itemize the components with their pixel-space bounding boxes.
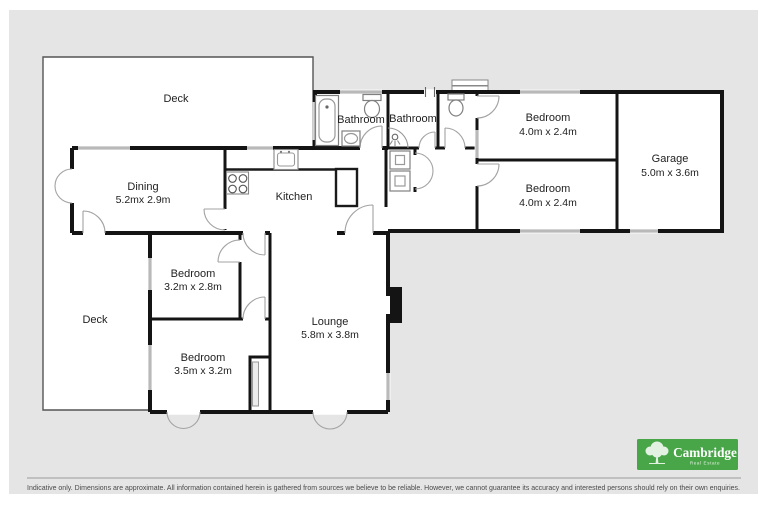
cambridge-logo: Cambridge Real Estate [637,439,738,470]
room-label-deck-top: Deck [163,93,189,105]
logo-tagline: Real Estate [690,461,720,466]
room-label-deck-left: Deck [82,314,108,326]
svg-text:4.0m x 2.4m: 4.0m x 2.4m [519,126,577,138]
svg-text:Lounge: Lounge [312,316,349,328]
room-label-kitchen: Kitchen [276,191,313,203]
disclaimer-text: Indicative only. Dimensions are approxim… [27,483,740,492]
bathtub-icon [316,96,339,146]
room-label-bathroom-2: Bathroom [389,113,437,125]
svg-text:Bedroom: Bedroom [526,112,571,124]
room-label-bedroom-small: Bedroom 3.2m x 2.8m [164,268,222,293]
wc-toilet-icon [448,94,464,116]
washer-icon [390,151,410,169]
svg-text:Bedroom: Bedroom [526,183,571,195]
svg-text:3.5m x 3.2m: 3.5m x 3.2m [174,365,232,377]
svg-text:4.0m x 2.4m: 4.0m x 2.4m [519,197,577,209]
fireplace-icon [384,287,403,323]
room-label-bathroom-1: Bathroom [337,114,385,126]
svg-text:Bedroom: Bedroom [171,268,216,280]
svg-text:Dining: Dining [127,181,158,193]
dryer-icon [390,171,410,191]
svg-text:Garage: Garage [652,153,689,165]
sink-icon [342,131,360,146]
floorplan-page: Deck Dining 5.2mx 2.9m Kitchen Bathroom … [0,0,768,512]
stove-icon [227,172,249,194]
svg-text:5.8m x 3.8m: 5.8m x 3.8m [301,329,359,341]
wardrobe-icon [253,362,259,406]
svg-text:3.2m x 2.8m: 3.2m x 2.8m [164,281,222,293]
svg-text:5.2mx 2.9m: 5.2mx 2.9m [116,194,171,206]
svg-text:Bedroom: Bedroom [181,352,226,364]
floorplan-image: Deck Dining 5.2mx 2.9m Kitchen Bathroom … [0,0,768,512]
room-label-bedroom-large: Bedroom 3.5m x 3.2m [174,352,232,377]
porch-steps [452,80,488,92]
kitchen-sink-icon [274,150,298,170]
logo-brand: Cambridge [673,445,737,460]
svg-text:5.0m x 3.6m: 5.0m x 3.6m [641,167,699,179]
